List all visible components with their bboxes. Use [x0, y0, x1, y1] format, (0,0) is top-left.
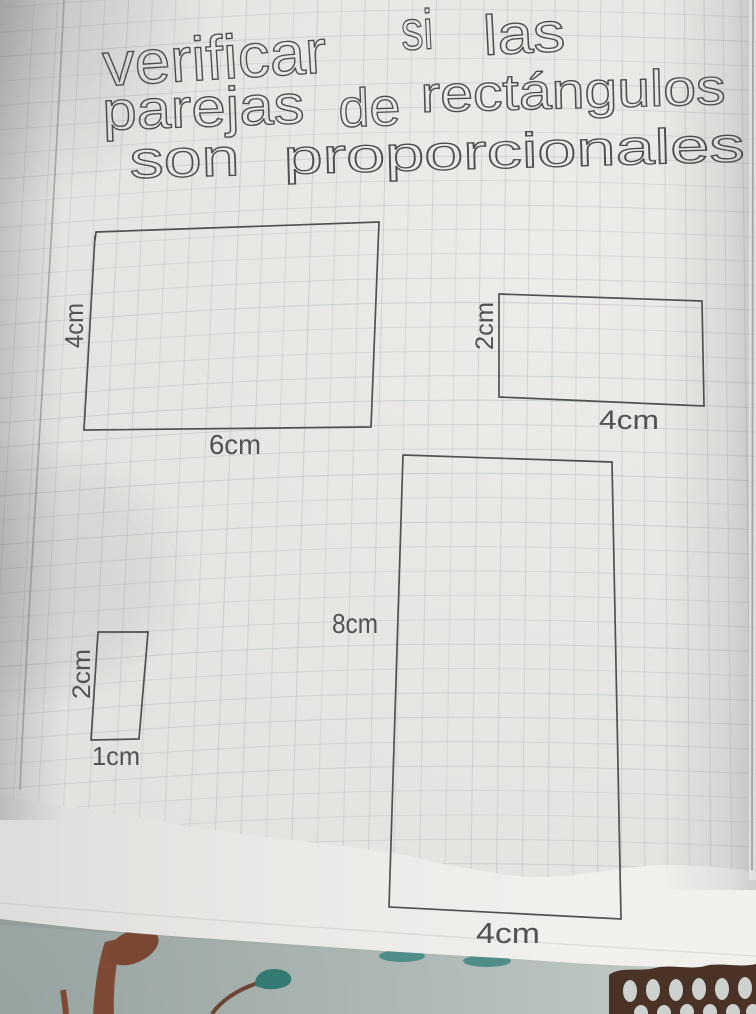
svg-text:6cm: 6cm [209, 429, 261, 460]
svg-text:2cm: 2cm [68, 649, 96, 699]
svg-text:las: las [481, 0, 566, 67]
svg-text:4cm: 4cm [599, 405, 659, 435]
svg-text:1cm: 1cm [92, 741, 140, 771]
svg-text:si: si [399, 0, 434, 62]
svg-text:son: son [129, 128, 241, 190]
svg-text:4cm: 4cm [59, 303, 89, 348]
svg-text:rectángulos: rectángulos [420, 58, 726, 123]
svg-text:4cm: 4cm [476, 918, 540, 950]
svg-text:2cm: 2cm [471, 302, 499, 350]
svg-text:8cm: 8cm [332, 608, 378, 639]
